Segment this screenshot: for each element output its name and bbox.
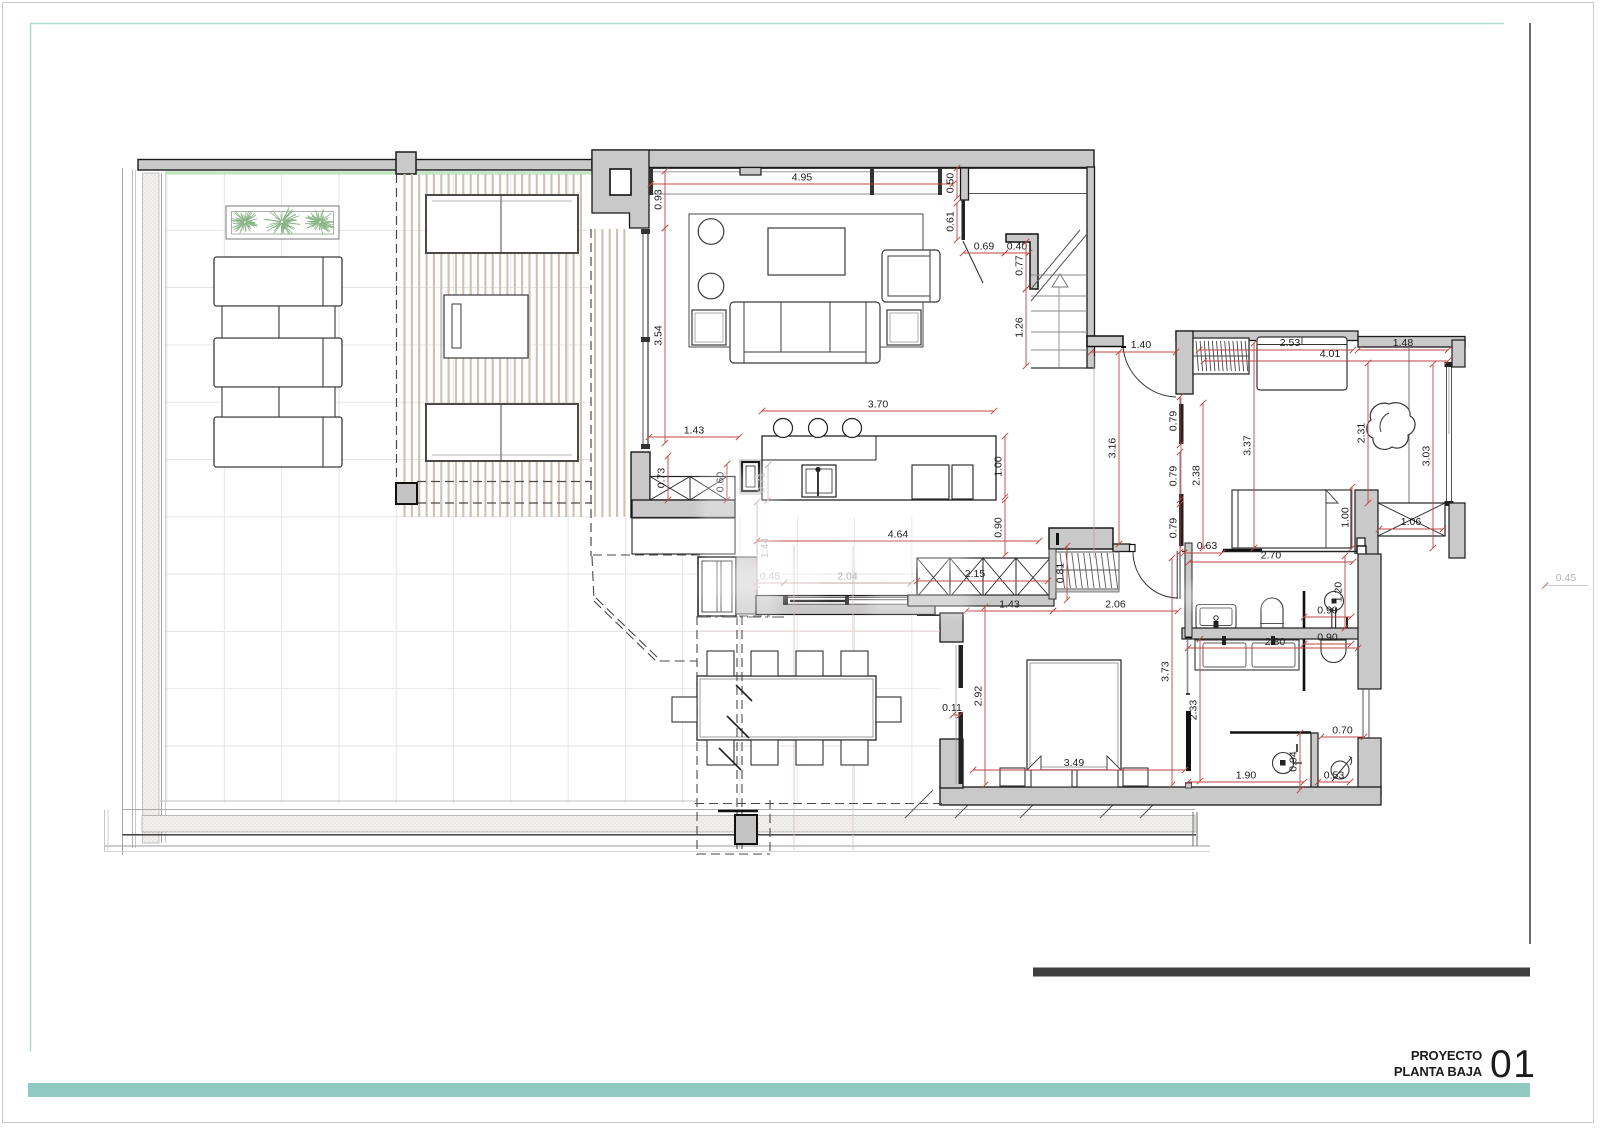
svg-text:1.43: 1.43 bbox=[999, 599, 1020, 611]
svg-text:2.04: 2.04 bbox=[837, 571, 858, 583]
svg-text:4.01: 4.01 bbox=[1320, 348, 1341, 360]
svg-text:1.20: 1.20 bbox=[1333, 582, 1345, 603]
svg-text:3.03: 3.03 bbox=[1421, 446, 1433, 467]
svg-text:0.45: 0.45 bbox=[1556, 572, 1577, 584]
svg-text:2.53: 2.53 bbox=[1280, 337, 1301, 349]
svg-text:1.00: 1.00 bbox=[1340, 507, 1352, 528]
svg-text:0.77: 0.77 bbox=[1014, 255, 1026, 276]
svg-text:2.70: 2.70 bbox=[1261, 550, 1282, 562]
svg-text:0.79: 0.79 bbox=[1168, 518, 1180, 539]
svg-text:4.95: 4.95 bbox=[792, 172, 813, 184]
svg-text:1.26: 1.26 bbox=[1014, 317, 1026, 338]
svg-text:0.50: 0.50 bbox=[945, 173, 957, 194]
svg-text:0.90: 0.90 bbox=[1317, 605, 1338, 617]
svg-text:2.80: 2.80 bbox=[1265, 636, 1286, 648]
svg-text:PLANTA BAJA: PLANTA BAJA bbox=[1394, 1064, 1483, 1079]
svg-text:1.90: 1.90 bbox=[1236, 770, 1257, 782]
svg-text:0.69: 0.69 bbox=[974, 241, 995, 253]
svg-text:0.63: 0.63 bbox=[1197, 540, 1218, 552]
svg-text:0.90: 0.90 bbox=[993, 517, 1005, 538]
svg-text:01: 01 bbox=[1490, 1043, 1536, 1086]
svg-text:0.73: 0.73 bbox=[656, 468, 668, 489]
svg-text:0.79: 0.79 bbox=[1168, 466, 1180, 487]
svg-text:2.31: 2.31 bbox=[1356, 423, 1368, 444]
svg-text:3.54: 3.54 bbox=[653, 325, 665, 346]
svg-text:1.40: 1.40 bbox=[1131, 339, 1152, 351]
svg-text:0.94: 0.94 bbox=[1288, 751, 1300, 772]
svg-text:2.38: 2.38 bbox=[1191, 465, 1203, 486]
svg-text:1.48: 1.48 bbox=[1393, 337, 1414, 349]
svg-text:2.92: 2.92 bbox=[973, 686, 985, 707]
svg-text:0.61: 0.61 bbox=[945, 211, 957, 232]
svg-text:3.49: 3.49 bbox=[1064, 757, 1085, 769]
svg-text:0.70: 0.70 bbox=[1332, 725, 1353, 737]
svg-text:1.43: 1.43 bbox=[684, 425, 705, 437]
svg-text:0.90: 0.90 bbox=[1317, 632, 1338, 644]
svg-text:PROYECTO: PROYECTO bbox=[1411, 1048, 1482, 1063]
svg-text:3.16: 3.16 bbox=[1107, 438, 1119, 459]
svg-text:0.40: 0.40 bbox=[1007, 241, 1028, 253]
svg-text:1.06: 1.06 bbox=[1401, 516, 1422, 528]
svg-text:4.64: 4.64 bbox=[888, 529, 909, 541]
svg-text:2.33: 2.33 bbox=[1188, 700, 1200, 721]
svg-text:2.06: 2.06 bbox=[1105, 599, 1126, 611]
svg-text:3.73: 3.73 bbox=[1160, 661, 1172, 682]
svg-text:3.37: 3.37 bbox=[1242, 435, 1254, 456]
svg-text:3.70: 3.70 bbox=[868, 399, 889, 411]
svg-text:2.15: 2.15 bbox=[965, 568, 986, 580]
svg-text:0.11: 0.11 bbox=[942, 702, 962, 714]
svg-text:0.93: 0.93 bbox=[653, 189, 665, 210]
svg-text:0.53: 0.53 bbox=[1324, 770, 1345, 782]
svg-text:0.79: 0.79 bbox=[1168, 411, 1180, 432]
svg-text:0.81: 0.81 bbox=[1055, 563, 1067, 584]
svg-text:1.00: 1.00 bbox=[993, 456, 1005, 477]
